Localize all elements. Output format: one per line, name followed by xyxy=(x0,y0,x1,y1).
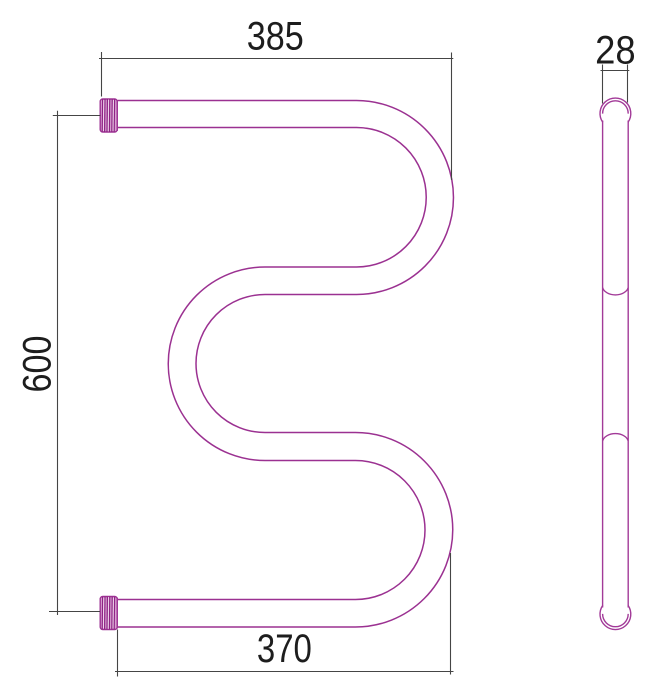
svg-text:385: 385 xyxy=(247,15,304,59)
svg-text:370: 370 xyxy=(257,627,312,671)
svg-text:600: 600 xyxy=(16,336,60,393)
svg-text:28: 28 xyxy=(595,29,636,73)
